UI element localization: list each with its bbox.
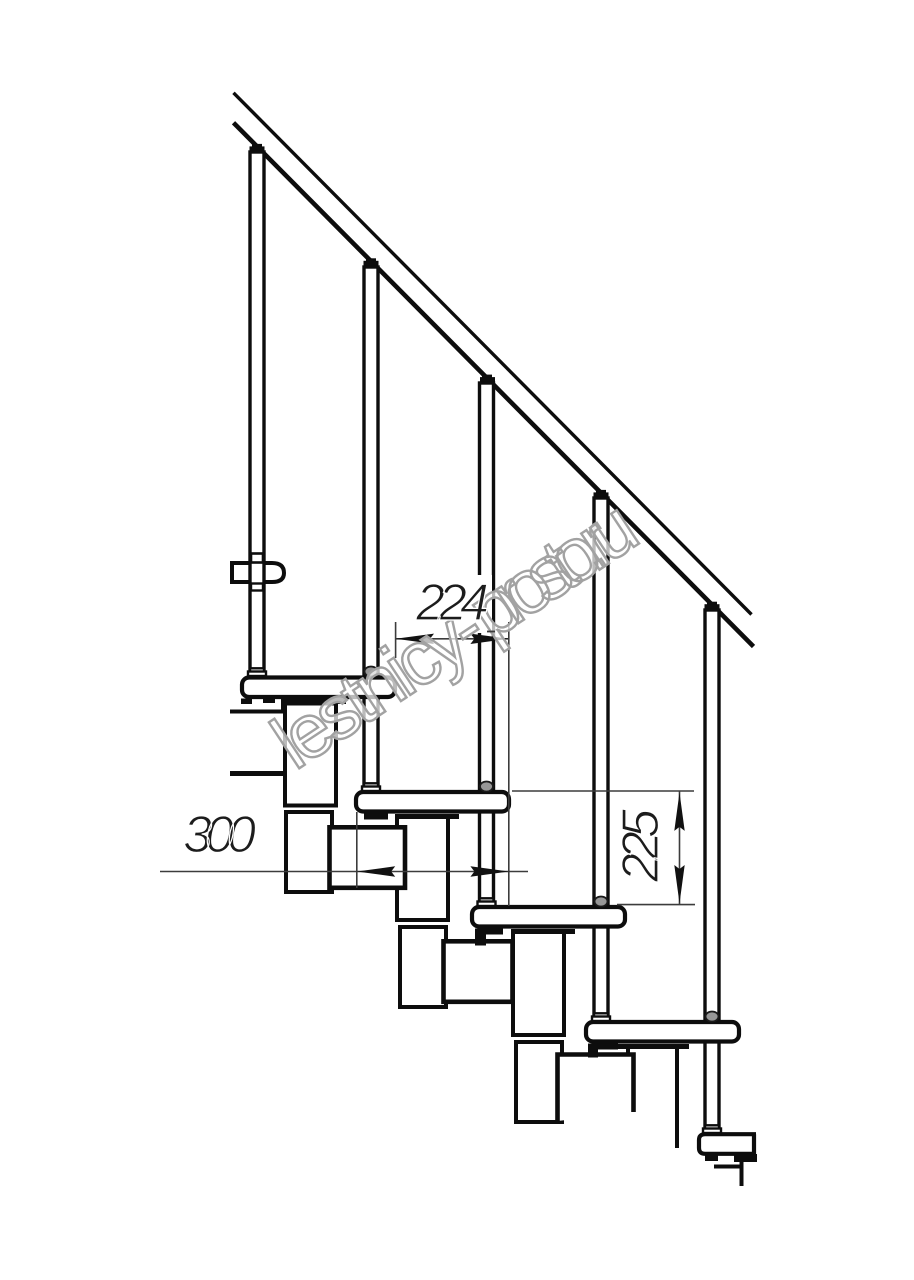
svg-text:225: 225 (612, 808, 670, 883)
svg-text:300: 300 (183, 806, 256, 864)
svg-text:224: 224 (415, 574, 487, 632)
